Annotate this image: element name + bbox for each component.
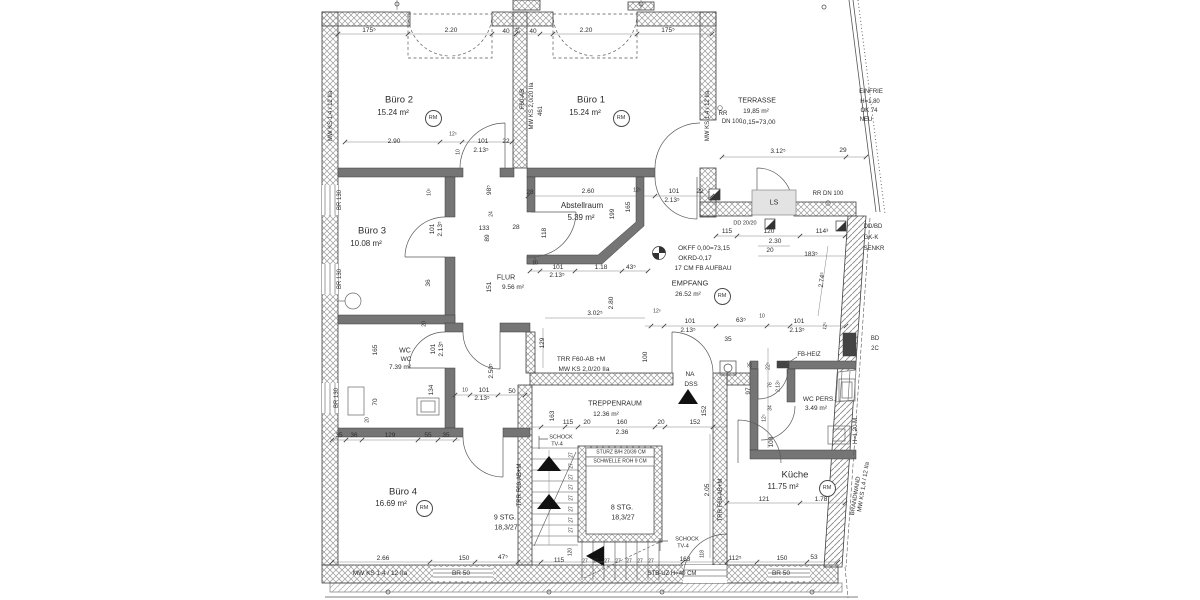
- room-area-wc: 7.39 m²: [389, 365, 411, 372]
- beam-note: STB-UZ H=40 CM: [648, 571, 697, 577]
- sound-insulation-note: SCHOCK: [549, 435, 573, 441]
- window-note: BR 130: [334, 388, 340, 408]
- room-area-flur: 9.56 m²: [502, 285, 524, 292]
- dim-label: 29: [839, 148, 846, 155]
- room-name-buero-1: Büro 1: [577, 95, 605, 105]
- dim-label: 151: [487, 282, 494, 293]
- dim-label: 2.13⁵: [439, 341, 446, 356]
- dim-label: 24: [517, 27, 522, 33]
- dim-label: 121: [759, 497, 770, 504]
- wall-spec: F60-AB: [520, 89, 526, 109]
- dim-label: 114³: [816, 229, 829, 236]
- dim-label: 36: [426, 279, 433, 286]
- dim-label: 2.13⁵: [680, 328, 695, 335]
- rm-marker-empfang: RM: [714, 288, 731, 305]
- room-name-wc: WC: [399, 348, 411, 355]
- ceiling-note: DD 20/20: [733, 221, 756, 227]
- dim-label: 27: [626, 560, 632, 565]
- dim-label: 129: [385, 433, 396, 440]
- dim-label: 27: [615, 560, 621, 565]
- dim-label: 199: [610, 209, 617, 220]
- dim-label: 12⁵: [449, 133, 457, 138]
- dim-label: 12⁵: [633, 189, 641, 194]
- dim-label: 20: [657, 420, 664, 427]
- dim-label: 101: [479, 388, 490, 395]
- room-area-kueche: 11.75 m²: [768, 483, 799, 491]
- dim-label: 28: [512, 225, 519, 232]
- dim-label: 2.80: [609, 297, 616, 310]
- dim-label: 3.12⁵: [770, 149, 785, 156]
- dim-label: 35: [335, 433, 342, 440]
- sound-insulation-note: TV-4: [551, 442, 563, 448]
- heating-note: FB-HEIZ: [797, 352, 820, 358]
- room-area-buero-2: 15.24 m²: [377, 109, 409, 117]
- wall-spec: TRR F60-AB +M: [557, 357, 605, 364]
- dim-label: 20: [366, 417, 371, 423]
- room-name-wc-pers: WC PERS.: [803, 397, 835, 404]
- fence-note: H=1,80: [860, 99, 880, 105]
- vent-note: DSS: [684, 382, 697, 389]
- floor-plan-sheet: Büro 215.24 m²RMBüro 115.24 m²RMBüro 310…: [0, 0, 1200, 600]
- dim-label: 1.78: [815, 497, 828, 504]
- dim-label: 47⁵: [498, 555, 508, 562]
- room-area-empfang: 26.52 m²: [675, 292, 701, 299]
- dim-label: 12⁵: [653, 310, 661, 315]
- dim-label: 134: [429, 385, 436, 396]
- ceiling-note: DD/BD: [864, 224, 883, 230]
- parapet-note: H=1,20 M: [853, 418, 859, 444]
- room-area-buero-4: 16.69 m²: [375, 500, 407, 508]
- dim-label: 10: [759, 315, 765, 320]
- level-note: 17 CM FB AUFBAU: [674, 266, 731, 273]
- dim-label: 12⁵: [823, 322, 829, 330]
- level-note: OKFF 0,00=73,15: [678, 246, 730, 253]
- ceiling-note: SENKR: [864, 246, 885, 252]
- dim-label: 12⁵: [763, 414, 768, 422]
- dim-label: 2.13⁵: [789, 328, 804, 335]
- wall-spec: TRR F60-AB+M: [517, 464, 523, 507]
- dim-label: 35: [442, 433, 449, 440]
- dim-label: 27: [570, 527, 575, 533]
- dim-label: 175⁵: [661, 28, 675, 35]
- shaft-label: LS: [770, 200, 779, 207]
- dim-label: 35: [749, 362, 754, 368]
- dim-label: 150: [459, 556, 470, 563]
- lintel-note: SCHWELLE ROH 9 CM: [593, 460, 646, 465]
- room-area-terrasse: 19,85 m²: [743, 109, 769, 116]
- dim-label: 2.50⁵: [489, 363, 496, 378]
- dim-label: 10: [532, 262, 538, 267]
- room-area-wc-pers: 3.49 m²: [805, 406, 827, 413]
- dim-label: 63⁵: [736, 318, 746, 325]
- dim-label: 27: [570, 474, 575, 480]
- fence-note: OK 74: [860, 108, 877, 114]
- dim-label: 1.18: [595, 265, 608, 272]
- dim-label: 53: [810, 555, 817, 562]
- dim-label: 70: [373, 398, 380, 405]
- dim-label: 2.13⁵: [664, 198, 679, 205]
- ceiling-note: GK-K: [864, 235, 879, 241]
- dim-label: 2.13⁵: [474, 396, 489, 403]
- dim-label: 112⁵: [728, 556, 741, 563]
- dim-label: 2.30: [769, 239, 782, 246]
- sound-insulation-note: SCHOCK: [675, 537, 699, 543]
- vent-note: NA: [685, 372, 694, 379]
- room-name-buero-4: Büro 4: [389, 487, 417, 497]
- dim-label: 27: [570, 463, 575, 469]
- dim-label: 27: [593, 560, 599, 565]
- room-name-buero-2: Büro 2: [385, 95, 413, 105]
- dim-label: 101: [430, 224, 437, 235]
- drain-note: RR DN 100: [813, 191, 844, 197]
- dim-label: 89: [485, 234, 492, 241]
- room-name-empfang: EMPFANG: [672, 279, 709, 287]
- window-note: BR 50: [452, 571, 470, 578]
- room-name-terrasse: TERRASSE: [738, 98, 776, 105]
- dim-label: 24: [490, 211, 495, 217]
- dim-label: 22: [502, 139, 509, 146]
- dim-label: 2.60: [582, 189, 595, 196]
- room-area-buero-1: 15.24 m²: [569, 109, 601, 117]
- dim-label: 20: [423, 321, 428, 327]
- dim-label: 100: [769, 437, 776, 448]
- dim-label: 35: [724, 337, 731, 344]
- drain-note: RR: [719, 111, 728, 117]
- dim-label: 27: [570, 506, 575, 512]
- room-area-treppenraum: 12.36 m²: [593, 412, 619, 419]
- room-name-flur: FLUR: [497, 275, 515, 282]
- stair-note: 9 STG.: [494, 515, 516, 522]
- fence-note: NEU: [860, 117, 873, 123]
- dim-label: 98⁵: [487, 185, 494, 195]
- dim-label: 163: [550, 411, 557, 422]
- dim-label: 165: [373, 345, 380, 356]
- dim-label: 20: [583, 420, 590, 427]
- dim-label: 27: [570, 495, 575, 501]
- dim-label: 101: [478, 139, 489, 146]
- wall-spec: MW KS 1,4 / 12 IIa: [328, 91, 334, 141]
- level-note: OKRD-0,17: [678, 256, 712, 263]
- dim-label: 40: [529, 29, 536, 36]
- dim-label: 27: [604, 560, 610, 565]
- dim-label: 10⁵: [428, 188, 433, 196]
- dim-label: 183⁵: [804, 252, 818, 259]
- wall-spec: MW KS 1,4 / 12 IIa: [353, 571, 408, 578]
- dim-label: 2.20: [445, 28, 458, 35]
- dim-label: 101: [794, 319, 805, 326]
- window-note: BR 130: [337, 190, 343, 210]
- dim-label: 101: [431, 344, 438, 355]
- dim-label: 115: [722, 229, 732, 236]
- fence-note: EINFRIE: [859, 89, 883, 95]
- dim-label: 36: [350, 433, 357, 440]
- drain-note: DN 100: [722, 119, 742, 125]
- dim-label: 2.66: [377, 556, 390, 563]
- dim-label: 152: [702, 406, 709, 417]
- dim-label: 27: [570, 452, 575, 458]
- dim-label: 40: [502, 29, 509, 36]
- rm-marker-buero-2: RM: [425, 110, 442, 127]
- ceiling-note: BD: [871, 336, 879, 342]
- dim-label: 118: [542, 228, 549, 238]
- dim-label: 150: [777, 556, 788, 563]
- dim-label: 101: [669, 189, 680, 196]
- dim-label: 152: [690, 420, 701, 427]
- dim-label: 22: [696, 189, 703, 196]
- room-name-abstellraum: Abstellraum: [561, 202, 603, 210]
- room-area-abstellraum: 5.39 m²: [567, 214, 594, 222]
- dim-label: 20: [766, 248, 773, 255]
- dim-label: 100: [643, 352, 650, 363]
- dim-label: 115: [554, 558, 564, 565]
- room-name-buero-3: Büro 3: [358, 226, 386, 236]
- dim-label: 101: [685, 319, 696, 326]
- dim-label: 55: [424, 433, 431, 440]
- dim-label: 27: [648, 560, 654, 565]
- room-area-buero-3: 10.08 m²: [350, 240, 382, 248]
- rm-marker-buero-1: RM: [613, 110, 630, 127]
- stair-note: 18,3/27: [494, 525, 517, 532]
- room-name-treppenraum: TREPPENRAUM: [588, 401, 642, 408]
- ceiling-note: 2C: [871, 346, 879, 352]
- dim-label: 115: [563, 420, 573, 427]
- dim-label: 2.20: [580, 28, 593, 35]
- dim-label: 43⁵: [626, 265, 636, 272]
- dim-label: 2.13⁵: [473, 148, 488, 155]
- lintel-note: STURZ B/H 20/39 CM: [596, 451, 645, 456]
- dim-label: 76: [769, 382, 774, 388]
- dim-label: 27: [637, 560, 643, 565]
- dim-label: 165: [626, 202, 633, 213]
- dim-label: 50: [508, 389, 515, 396]
- window-note: BR 130: [337, 269, 343, 289]
- wall-spec: MW KS 2,0/20 IIa: [529, 82, 535, 129]
- dim-label: 118: [701, 550, 706, 558]
- dim-label: 2.36: [616, 430, 629, 437]
- rm-marker-buero-4: RM: [416, 500, 433, 517]
- room-extra-wc: WC: [401, 357, 412, 364]
- dim-label: 120: [764, 229, 775, 236]
- dim-label: 2.05: [705, 484, 712, 497]
- rm-marker-kueche: RM: [819, 480, 836, 497]
- dim-label: 129: [540, 338, 547, 349]
- dim-label: 34: [769, 405, 774, 411]
- dim-label: 2.74⁵: [819, 272, 827, 288]
- window-note: BR 50: [772, 571, 790, 578]
- room-extra-terrasse: -0,15=73,00: [741, 120, 776, 127]
- dim-label: 28: [526, 190, 533, 197]
- dim-label: 2.13⁵: [777, 380, 782, 392]
- dim-label: 120: [569, 548, 574, 556]
- wall-spec: MW KS 2,0/20 IIa: [559, 367, 610, 374]
- dim-label: 133: [479, 226, 490, 233]
- dim-label: 160: [617, 420, 628, 427]
- stair-note: 18,3/27: [611, 515, 634, 522]
- dim-label: 3.02⁵: [587, 311, 602, 318]
- dim-label: 10: [457, 149, 462, 155]
- dim-label: 22⁵: [767, 362, 772, 370]
- dim-label: 101: [553, 265, 564, 272]
- dim-label: 175⁵: [362, 28, 376, 35]
- dim-label: 461: [538, 106, 544, 116]
- dim-label: 10: [462, 389, 468, 394]
- dim-label: 163: [680, 557, 691, 564]
- stair-note: 8 STG.: [611, 505, 633, 512]
- room-name-kueche: Küche: [782, 470, 809, 480]
- dim-label: 2.13⁵: [438, 221, 445, 236]
- wall-spec: TRR F60-AB+M: [718, 479, 724, 522]
- dim-label: 2.13⁵: [549, 273, 564, 280]
- dim-label: 27: [582, 560, 588, 565]
- dim-label: 2.90: [388, 139, 401, 146]
- sound-insulation-note: TV-4: [677, 544, 689, 550]
- wall-spec: MW KS 1,4 / 12 IIa: [705, 91, 711, 141]
- dim-label: 27: [570, 517, 575, 523]
- dim-label: 27: [570, 484, 575, 490]
- text-labels-layer: Büro 215.24 m²RMBüro 115.24 m²RMBüro 310…: [0, 0, 1200, 600]
- dim-label: 97: [746, 387, 753, 394]
